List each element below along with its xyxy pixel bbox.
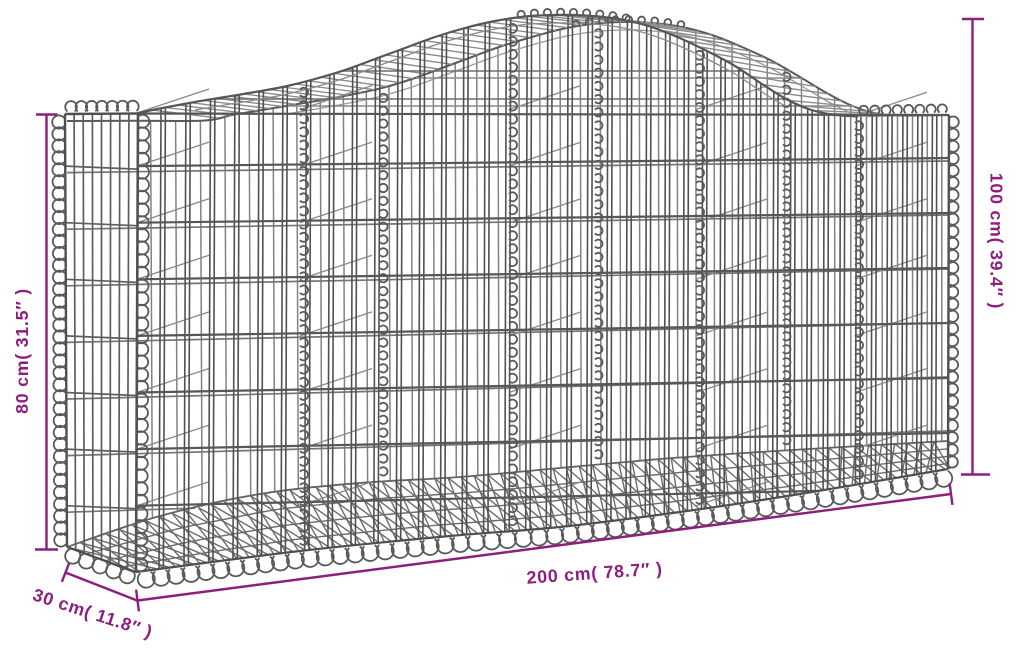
svg-text:100 cm( 39.4″ ): 100 cm( 39.4″ ) xyxy=(987,173,1007,309)
svg-text:80 cm( 31.5″ ): 80 cm( 31.5″ ) xyxy=(12,288,32,414)
